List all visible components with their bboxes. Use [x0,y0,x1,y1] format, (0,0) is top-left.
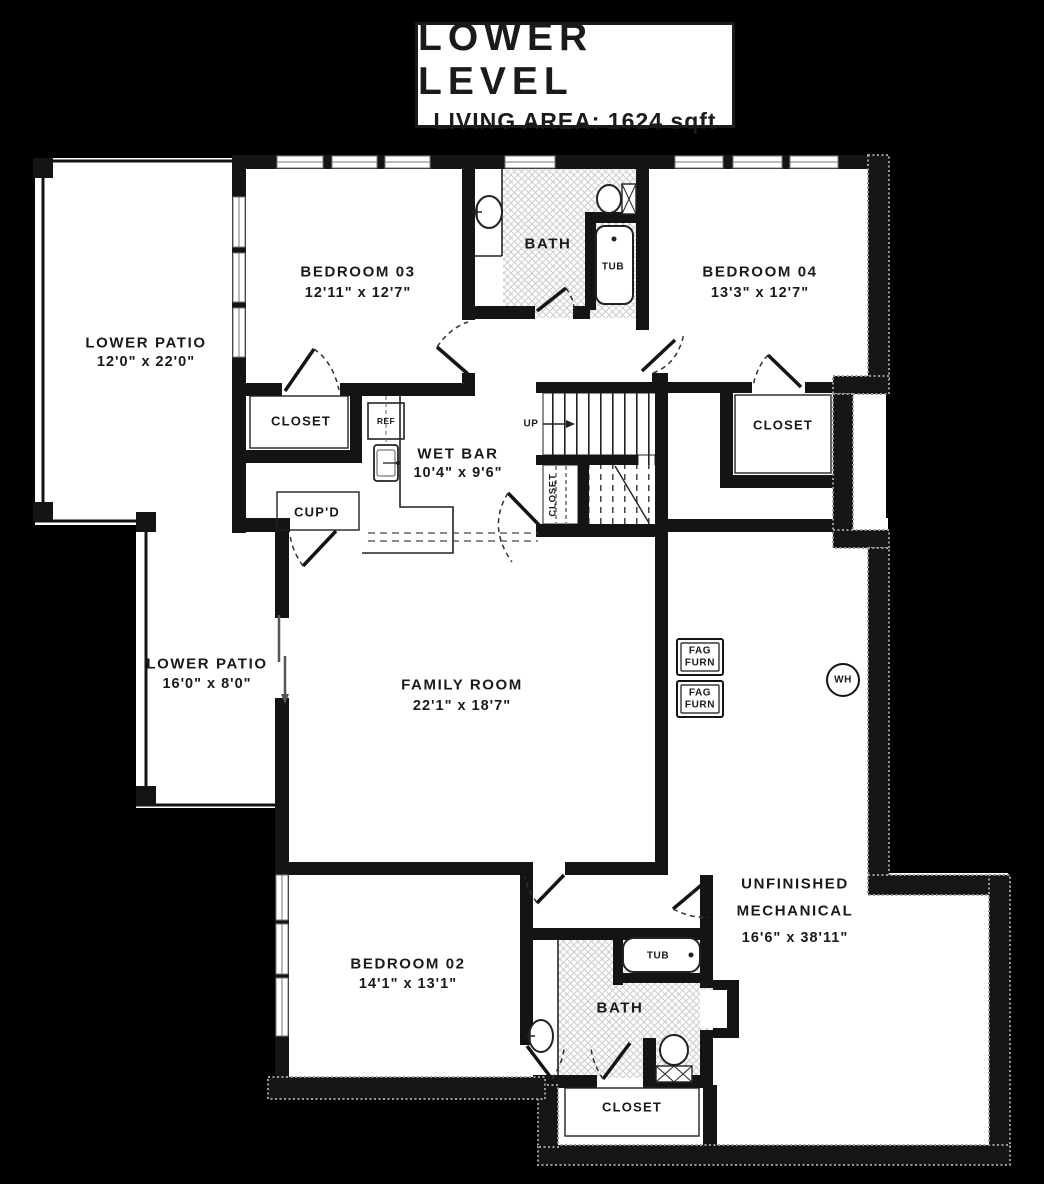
label-bath-lower: BATH [597,1000,644,1017]
label-unfinished-dims: 16'6" x 38'11" [742,930,848,946]
label-bedroom-02-dims: 14'1" x 13'1" [359,976,457,992]
wet-bar-sink [374,445,400,481]
label-bath-upper: BATH [525,236,572,253]
label-family-room: FAMILY ROOM [401,677,523,694]
label-lower-patio-2: LOWER PATIO [146,656,267,673]
toilet-upper [597,184,636,214]
plumbing-niche [700,990,727,1028]
label-wet-bar-dims: 10'4" x 9'6" [413,465,502,481]
label-tub-lower: TUB [647,951,669,962]
label-water-heater: WH [834,675,852,686]
window-bedroom-03-wall [233,197,245,357]
label-furnace-1-line2: FURN [685,658,715,669]
label-unfinished-line2: MECHANICAL [737,903,854,920]
label-furnace-1-line1: FAG [689,646,711,657]
label-lower-patio-2-dims: 16'0" x 8'0" [162,676,251,692]
label-furnace-2-line2: FURN [685,700,715,711]
label-bedroom-04-dims: 13'3" x 12'7" [711,285,809,301]
label-bedroom-04: BEDROOM 04 [702,264,817,281]
vanity-lower [533,940,559,1075]
label-ref: REF [377,416,395,426]
label-wet-bar: WET BAR [417,446,498,463]
label-closet-bedroom-04: CLOSET [753,418,813,433]
label-lower-patio-1: LOWER PATIO [85,335,206,352]
floor-plan-canvas: LOWER LEVEL LIVING AREA: 1624 sqft [0,0,1044,1184]
label-stair-closet: CLOSET [548,473,559,516]
toilet-lower [656,1035,692,1082]
window-bedroom-02-wall [276,875,288,1036]
floor-plan-drawing [0,0,1044,1184]
label-bedroom-02: BEDROOM 02 [350,956,465,973]
label-stairs-up: UP [523,419,538,430]
label-bedroom-03: BEDROOM 03 [300,264,415,281]
label-bedroom-03-dims: 12'11" x 12'7" [305,285,411,301]
label-furnace-2-line1: FAG [689,688,711,699]
label-closet-lower: CLOSET [602,1100,662,1115]
label-cupboard: CUP'D [294,505,340,520]
label-lower-patio-1-dims: 12'0" x 22'0" [97,354,195,370]
vanity-upper [475,169,503,306]
label-tub-upper: TUB [602,262,624,273]
label-closet-bedroom-03: CLOSET [271,414,331,429]
label-family-room-dims: 22'1" x 18'7" [413,698,511,714]
label-unfinished-line1: UNFINISHED [741,876,849,893]
